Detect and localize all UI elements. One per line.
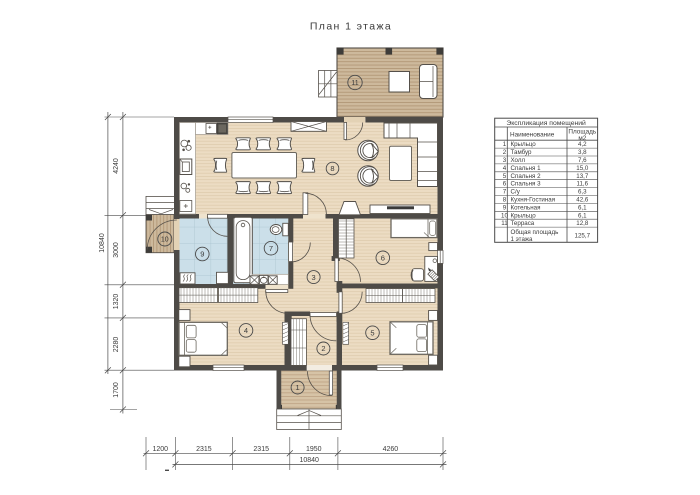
- svg-text:4,2: 4,2: [578, 141, 587, 148]
- svg-text:1320: 1320: [113, 294, 120, 310]
- svg-text:13,7: 13,7: [576, 173, 589, 180]
- svg-text:6,3: 6,3: [578, 189, 587, 196]
- svg-text:7: 7: [503, 189, 507, 196]
- svg-text:10: 10: [161, 237, 169, 244]
- svg-text:15,0: 15,0: [576, 165, 589, 172]
- svg-text:2315: 2315: [196, 446, 212, 453]
- svg-text:9: 9: [503, 204, 507, 211]
- svg-text:Котельная: Котельная: [511, 204, 541, 211]
- svg-text:Спальня 3: Спальня 3: [511, 181, 542, 188]
- svg-text:6,1: 6,1: [578, 212, 587, 219]
- svg-text:2: 2: [321, 344, 325, 353]
- svg-text:10840: 10840: [99, 233, 106, 253]
- svg-text:2315: 2315: [253, 446, 269, 453]
- svg-text:4: 4: [244, 326, 248, 335]
- svg-text:10840: 10840: [299, 457, 319, 464]
- svg-text:42,6: 42,6: [576, 197, 589, 204]
- svg-text:4240: 4240: [113, 158, 120, 174]
- svg-text:2: 2: [503, 149, 507, 156]
- svg-text:4260: 4260: [383, 446, 399, 453]
- svg-text:1 этажа: 1 этажа: [511, 236, 534, 243]
- svg-text:3: 3: [503, 157, 507, 164]
- svg-text:2280: 2280: [113, 337, 120, 353]
- svg-text:7: 7: [269, 244, 273, 253]
- svg-text:6: 6: [381, 254, 385, 263]
- svg-text:Крыльцо: Крыльцо: [511, 212, 537, 219]
- svg-text:Крыльцо: Крыльцо: [511, 141, 537, 148]
- svg-text:3: 3: [312, 273, 316, 282]
- svg-text:1200: 1200: [153, 446, 169, 453]
- svg-text:11: 11: [351, 80, 358, 87]
- svg-text:С/у: С/у: [511, 189, 521, 196]
- svg-text:125,7: 125,7: [575, 233, 591, 240]
- svg-text:1950: 1950: [306, 446, 322, 453]
- svg-text:Спальня 2: Спальня 2: [511, 173, 542, 180]
- svg-text:6: 6: [503, 181, 507, 188]
- svg-text:План 1 этажа: План 1 этажа: [310, 21, 392, 33]
- svg-text:9: 9: [200, 250, 204, 259]
- svg-text:6,1: 6,1: [578, 204, 587, 211]
- svg-text:Холл: Холл: [511, 157, 526, 164]
- svg-text:5: 5: [503, 173, 507, 180]
- svg-text:10: 10: [501, 212, 508, 219]
- svg-text:12,8: 12,8: [576, 220, 589, 227]
- svg-text:1: 1: [296, 383, 300, 392]
- svg-text:5: 5: [370, 328, 374, 337]
- svg-text:8: 8: [503, 197, 507, 204]
- svg-text:1700: 1700: [113, 382, 120, 398]
- svg-text:Тамбур: Тамбур: [511, 149, 533, 156]
- svg-text:11: 11: [501, 220, 508, 227]
- svg-text:8: 8: [330, 164, 334, 173]
- svg-text:3,8: 3,8: [578, 149, 587, 156]
- svg-text:3000: 3000: [113, 242, 120, 258]
- svg-text:Наименование: Наименование: [510, 132, 555, 139]
- svg-text:Общая площадь: Общая площадь: [511, 229, 559, 236]
- svg-text:11,6: 11,6: [577, 181, 589, 188]
- svg-text:4: 4: [503, 165, 507, 172]
- svg-text:Спальня 1: Спальня 1: [511, 165, 542, 172]
- svg-text:Экспликация помещений: Экспликация помещений: [506, 119, 586, 127]
- svg-text:Кухня-Гостиная: Кухня-Гостиная: [511, 197, 556, 204]
- svg-text:Терраса: Терраса: [511, 220, 535, 227]
- svg-text:1: 1: [503, 141, 507, 148]
- svg-text:7,6: 7,6: [578, 157, 587, 164]
